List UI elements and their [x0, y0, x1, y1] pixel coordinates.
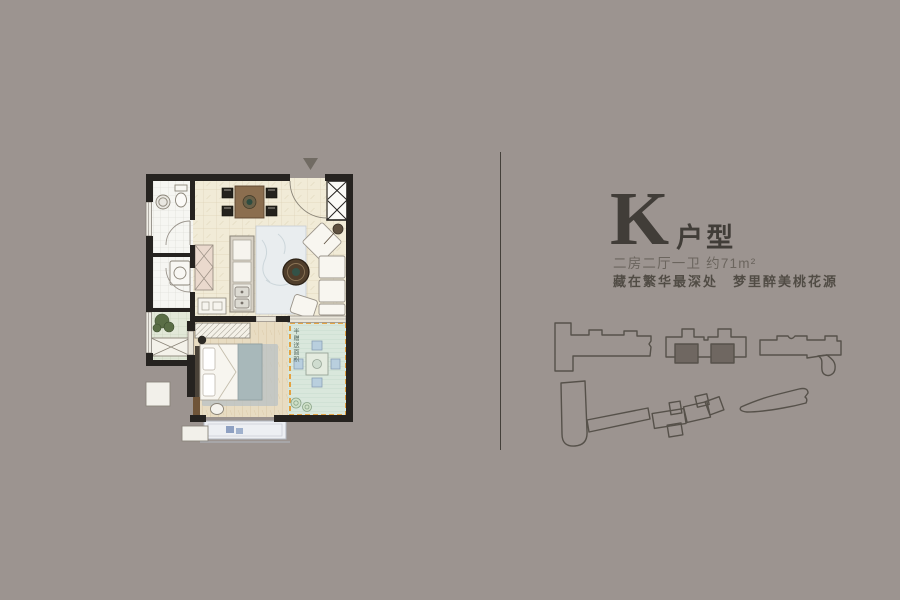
- balcony-slider: [188, 331, 194, 355]
- bedroom-door-slider: [256, 317, 276, 322]
- building-outlines: [555, 323, 841, 446]
- headboard: [195, 346, 200, 398]
- stool: [211, 404, 224, 415]
- vertical-divider: [500, 152, 501, 450]
- dresser: [193, 397, 200, 417]
- toilet-tank: [175, 185, 187, 191]
- highlight-unit-k: [675, 344, 698, 363]
- unit-tagline: 藏在繁华最深处 梦里醉美桃花源: [613, 271, 838, 290]
- wardrobe: [195, 323, 250, 338]
- floorplan: [138, 150, 363, 455]
- bedside-plant: [198, 336, 206, 344]
- pillow: [203, 374, 215, 396]
- tall-cabinet: [195, 245, 213, 290]
- coffee-table: [283, 259, 309, 285]
- building-4-bar: [587, 408, 650, 432]
- floor-lamp: [333, 224, 343, 234]
- bay-window: [200, 421, 290, 442]
- poster-canvas: 半赠送面积 K 户型 二房二厅一卫 约71m² 藏在繁华最深处 梦里醉美桃花源: [0, 0, 900, 600]
- entry-arrow-icon: [303, 158, 318, 170]
- building-4: [561, 381, 587, 446]
- unit-letter: K: [610, 181, 669, 257]
- building-3: [760, 336, 841, 358]
- building-5-cluster: [652, 394, 724, 437]
- unit-specs: 二房二厅一卫 约71m²: [613, 252, 756, 272]
- toilet: [176, 193, 187, 207]
- highlight-unit-k: [711, 344, 734, 363]
- building-3-hook: [818, 355, 835, 376]
- building-6: [740, 389, 808, 413]
- building-1: [555, 323, 651, 371]
- blanket: [238, 344, 262, 400]
- washer: [170, 261, 190, 285]
- unit-title: K 户型: [610, 181, 736, 257]
- terrace-label: 半赠送面积: [291, 328, 300, 363]
- basin: [156, 195, 170, 209]
- pillow: [203, 348, 215, 370]
- living-room: [256, 222, 345, 319]
- shaft: [327, 181, 347, 220]
- siteplan: [545, 315, 855, 450]
